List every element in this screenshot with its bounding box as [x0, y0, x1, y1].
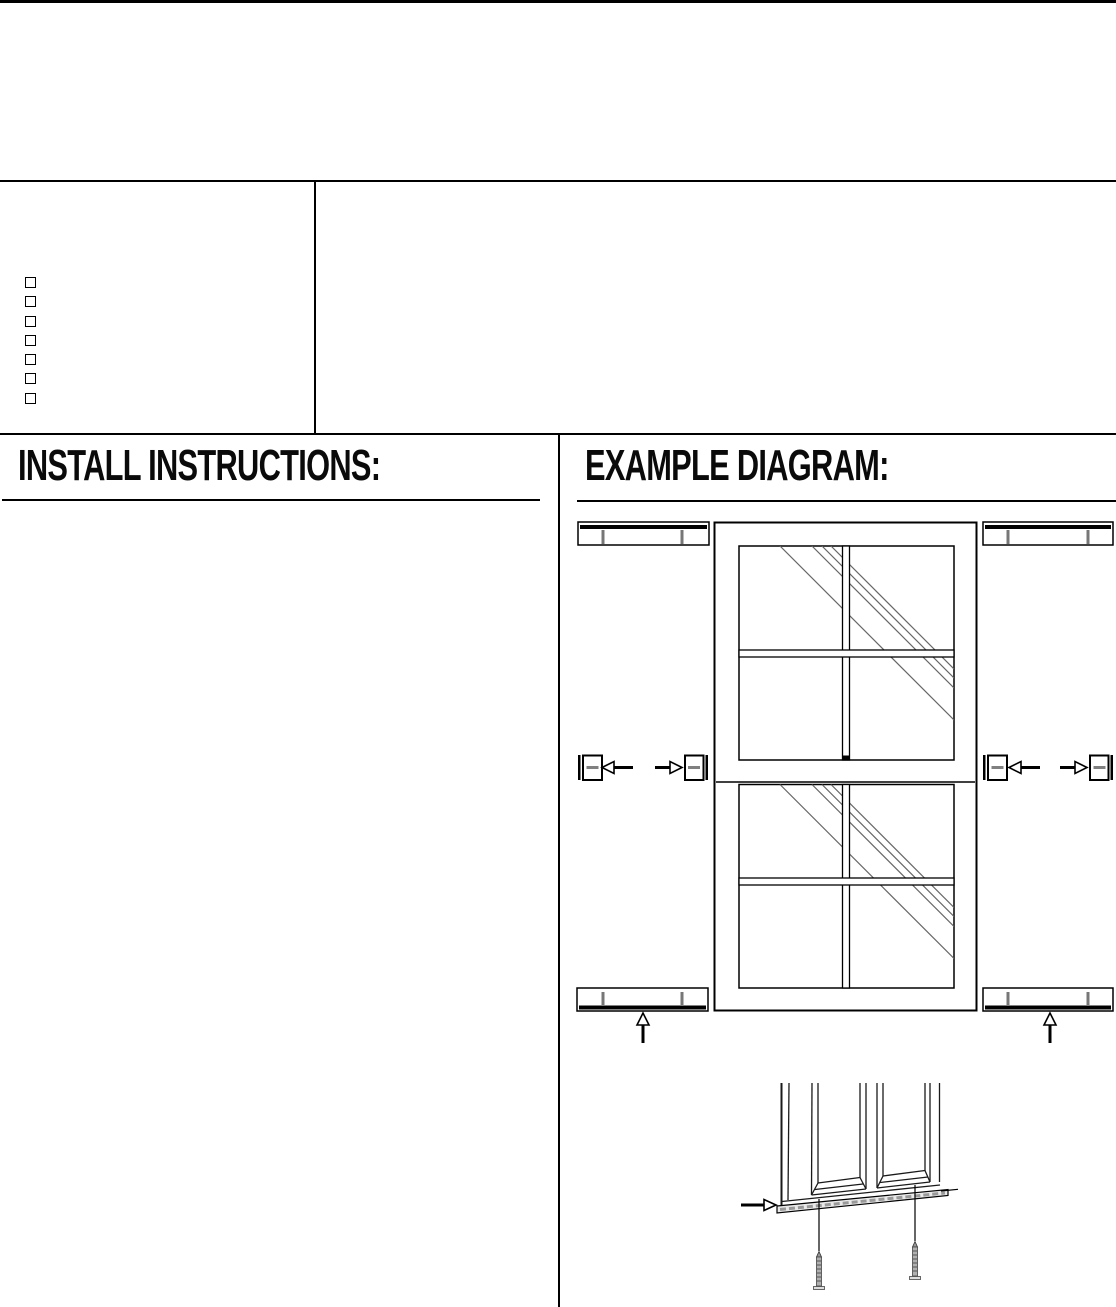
up-arrow-right [1044, 1013, 1056, 1043]
checkbox-item-4[interactable] [25, 335, 36, 346]
bottom-left-shutter-bar [577, 988, 708, 1011]
example-diagram-svg [560, 508, 1116, 1307]
checkbox-item-3[interactable] [25, 316, 36, 327]
page-top-border [0, 0, 1116, 3]
top-right-shutter-bar [983, 522, 1113, 545]
lower-sash [739, 785, 954, 989]
left-arrow-toward-window-right [1009, 762, 1040, 774]
screw-left [814, 1252, 825, 1290]
left-inner-tilt-bracket [685, 755, 708, 780]
bottom-right-shutter-bar [983, 988, 1113, 1011]
left-arrow-outward [602, 762, 633, 774]
example-diagram-heading: EXAMPLE DIAGRAM: [585, 444, 889, 488]
upper-band-top-rule [0, 180, 1116, 182]
checkbox-item-1[interactable] [25, 277, 36, 288]
checkbox-list [25, 277, 36, 412]
up-arrow-left [637, 1013, 649, 1043]
instruction-sheet-page: INSTALL INSTRUCTIONS: EXAMPLE DIAGRAM: [0, 0, 1116, 1307]
horizontal-muntin [739, 878, 954, 885]
top-left-shutter-bar [578, 522, 709, 545]
install-heading-underline [2, 499, 540, 501]
upper-sash [739, 546, 954, 761]
sash-lock [842, 756, 850, 761]
right-arrow-toward-window [655, 762, 682, 774]
right-arrow-outward [1060, 762, 1087, 774]
checkbox-item-2[interactable] [25, 296, 36, 307]
example-heading-underline [577, 500, 1116, 502]
right-outer-tilt-bracket [1090, 755, 1113, 780]
checkbox-item-5[interactable] [25, 354, 36, 365]
shutter-bottom-profile [782, 1083, 941, 1211]
install-instructions-heading: INSTALL INSTRUCTIONS: [18, 444, 380, 488]
vertical-muntin [843, 785, 850, 989]
screw-right [910, 1242, 921, 1280]
checkbox-item-7[interactable] [25, 393, 36, 404]
left-outer-tilt-bracket [578, 755, 602, 780]
right-inner-tilt-bracket [983, 755, 1007, 780]
checkbox-item-6[interactable] [25, 373, 36, 384]
upper-band-divider [314, 181, 316, 433]
attach-arrow [741, 1200, 776, 1211]
bottom-mounting-detail [741, 1083, 958, 1290]
horizontal-muntin [739, 650, 954, 657]
